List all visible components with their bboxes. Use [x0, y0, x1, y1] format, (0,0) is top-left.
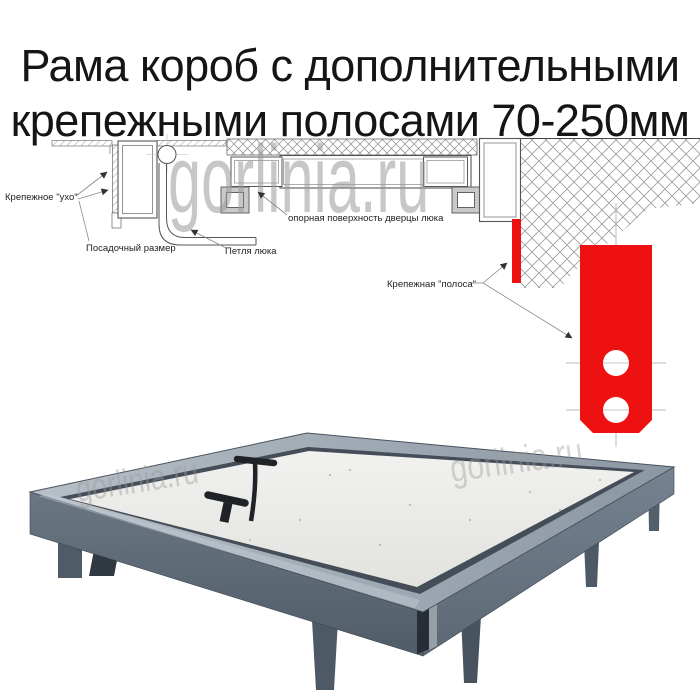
technical-drawing: gorlinia.ru	[5, 125, 700, 447]
label-mounting-strip: Крепежная "полоса"	[387, 279, 476, 290]
product-photo: gorlinia.ru gorlinia.ru	[30, 431, 674, 690]
leader-ear	[76, 172, 107, 196]
leader-seat	[79, 201, 89, 241]
door-square-right	[452, 187, 480, 213]
mounting-strip-section	[512, 219, 521, 283]
frame-profile-right	[480, 139, 521, 222]
label-mounting-ear: Крепежное "ухо"	[5, 192, 78, 203]
title-line-2: крепежными полосами 70-250мм	[0, 93, 700, 148]
page-title: Рама короб с дополнительными крепежными …	[0, 38, 700, 148]
leg-front-left	[312, 620, 338, 690]
product-page: Рама короб с дополнительными крепежными …	[0, 0, 700, 700]
label-seat-size: Посадочный размер	[86, 243, 176, 254]
title-line-1: Рама короб с дополнительными	[0, 38, 700, 93]
label-hatch-hinge: Петля люка	[225, 246, 277, 257]
label-door-support-surface: опорная поверхность дверцы люка	[288, 213, 444, 224]
door-block-right	[424, 157, 468, 187]
leader-strip-2	[483, 283, 572, 338]
frame-profile-left	[118, 141, 157, 218]
